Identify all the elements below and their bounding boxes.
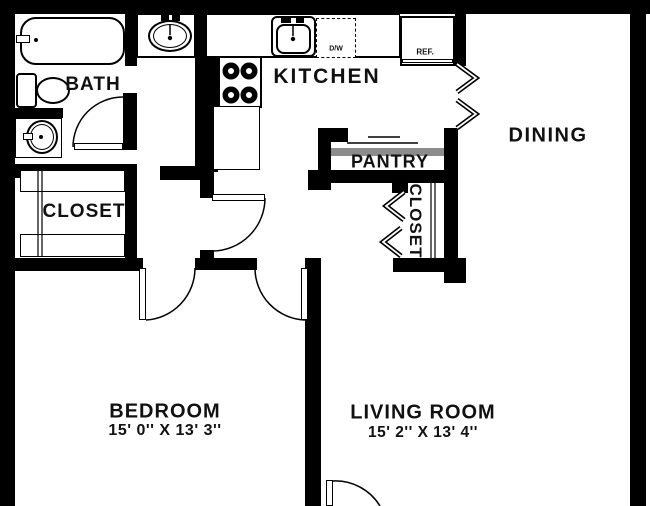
pantry-label: PANTRY xyxy=(351,152,429,173)
bath-label: BATH xyxy=(65,74,120,96)
living-door-arc xyxy=(255,268,305,320)
floor-plan: D/W REF. xyxy=(0,0,650,506)
closet-hall-label: CLOSET xyxy=(42,201,125,223)
pantry-shelf-lines xyxy=(347,137,418,143)
bath-door-arc xyxy=(73,97,123,147)
living-room-label: LIVING ROOM xyxy=(350,402,495,425)
kitchen-label: KITCHEN xyxy=(273,65,380,89)
kitchen-door-arc xyxy=(212,198,265,251)
dining-label: DINING xyxy=(509,125,588,148)
bifold-dining-icon xyxy=(457,64,476,128)
living-room-dims: 15' 2'' X 13' 4'' xyxy=(368,424,478,442)
bedroom-dims: 15' 0'' X 13' 3'' xyxy=(108,422,221,440)
closet-entry-label: CLOSET xyxy=(405,184,425,259)
bifold-closet-icon xyxy=(383,192,404,256)
entry-door-arc xyxy=(333,481,380,506)
stove-burners-icon xyxy=(223,63,258,104)
bedroom-label: BEDROOM xyxy=(109,401,220,424)
bedroom-door-arc xyxy=(146,268,195,320)
